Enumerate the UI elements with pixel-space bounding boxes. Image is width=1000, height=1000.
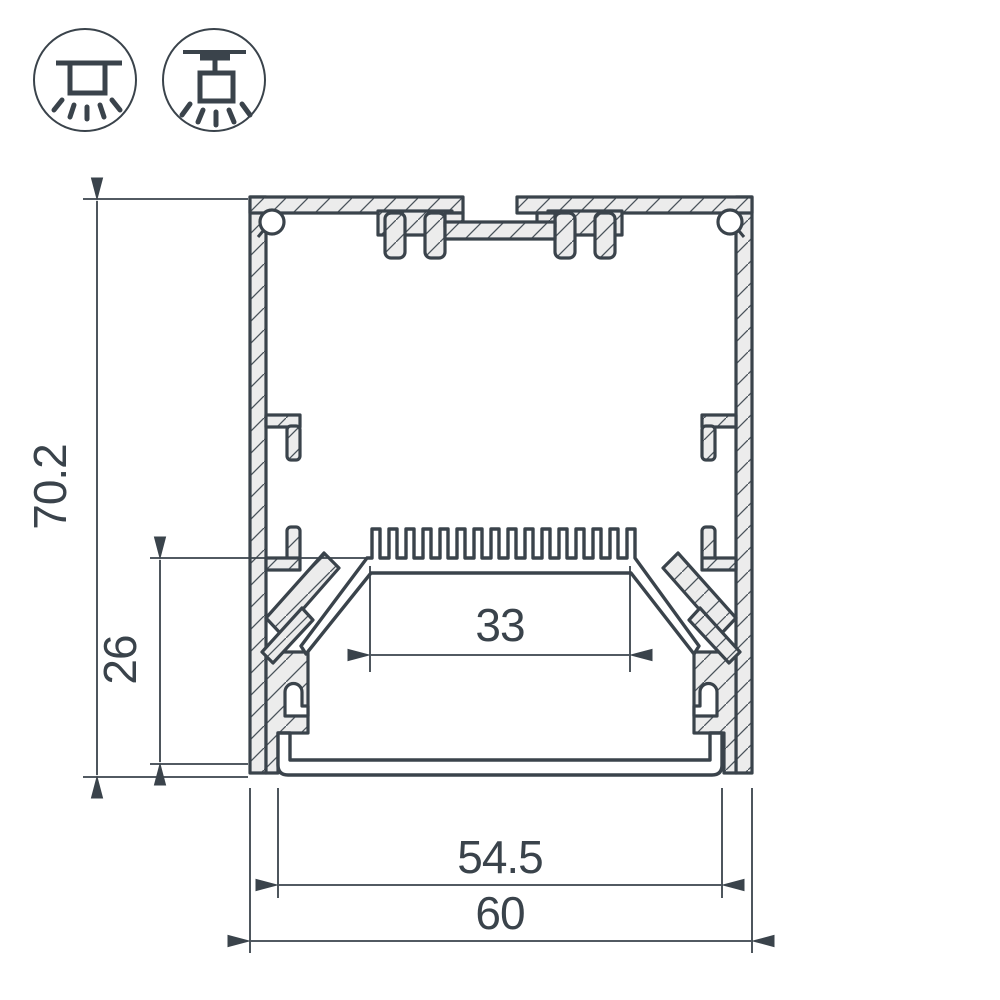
suspension-bridge xyxy=(445,222,555,239)
screw-boss-left xyxy=(260,210,284,234)
dim-label-led-shelf-width: 33 xyxy=(475,599,524,651)
wall-hook-bar xyxy=(287,527,300,561)
dim-label-inner-height: 26 xyxy=(94,635,146,684)
diffuser xyxy=(278,733,722,775)
wall-hook-bar xyxy=(702,426,715,460)
surface-mount-icon xyxy=(34,29,136,131)
wall-hook-bar xyxy=(702,527,715,561)
technical-drawing: 70.2 26 33 54.5 60 xyxy=(0,0,1000,1000)
top-rib xyxy=(595,213,615,258)
mount-icons xyxy=(34,29,265,131)
top-rib xyxy=(385,213,405,258)
top-rib xyxy=(555,213,575,258)
wall-hook-bar xyxy=(287,426,300,460)
wall-hook xyxy=(702,558,736,570)
profile-body xyxy=(250,197,752,775)
top-rib xyxy=(425,213,445,258)
dimensions xyxy=(83,199,752,953)
profile-drawing-svg: 70.2 26 33 54.5 60 xyxy=(0,0,1000,1000)
dim-label-diffuser-width: 54.5 xyxy=(457,831,543,883)
right-wall xyxy=(736,197,752,773)
wall-hook xyxy=(266,558,300,570)
left-wall xyxy=(250,197,266,773)
screw-boss-right xyxy=(718,210,742,234)
dim-label-overall-height: 70.2 xyxy=(24,444,76,530)
pendant-mount-icon xyxy=(163,29,265,131)
dim-label-overall-width: 60 xyxy=(475,887,524,939)
